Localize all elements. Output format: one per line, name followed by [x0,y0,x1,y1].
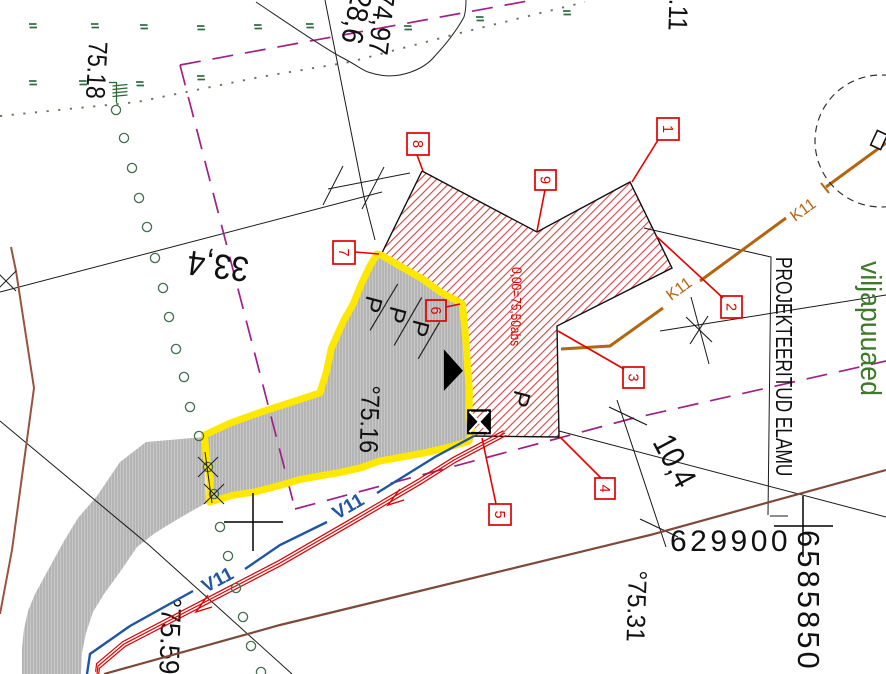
svg-text:33,4: 33,4 [185,242,251,288]
svg-text:PROJEKTEERITUD ELAMU: PROJEKTEERITUD ELAMU [770,257,795,476]
svg-text:7: 7 [335,248,351,256]
svg-text:1: 1 [659,125,675,133]
svg-text:2: 2 [722,303,738,311]
svg-text:75.18: 75.18 [80,41,113,100]
svg-text:4: 4 [596,484,612,492]
svg-text:°75.16: °75.16 [353,385,384,454]
svg-text:629900: 629900 [670,525,791,558]
svg-text:5.11: 5.11 [662,0,693,31]
svg-text:5: 5 [491,510,507,518]
svg-text:9: 9 [536,176,552,184]
svg-text:3: 3 [624,373,640,381]
svg-text:6: 6 [427,306,443,314]
svg-text:°75.59: °75.59 [153,597,187,674]
svg-text:8: 8 [409,140,425,148]
svg-text:viljapuuaed: viljapuuaed [855,261,886,396]
svg-text:6585850: 6585850 [791,530,826,672]
svg-text:0,00=75,50abs: 0,00=75,50abs [507,267,525,347]
svg-text:°75.31: °75.31 [620,570,651,643]
